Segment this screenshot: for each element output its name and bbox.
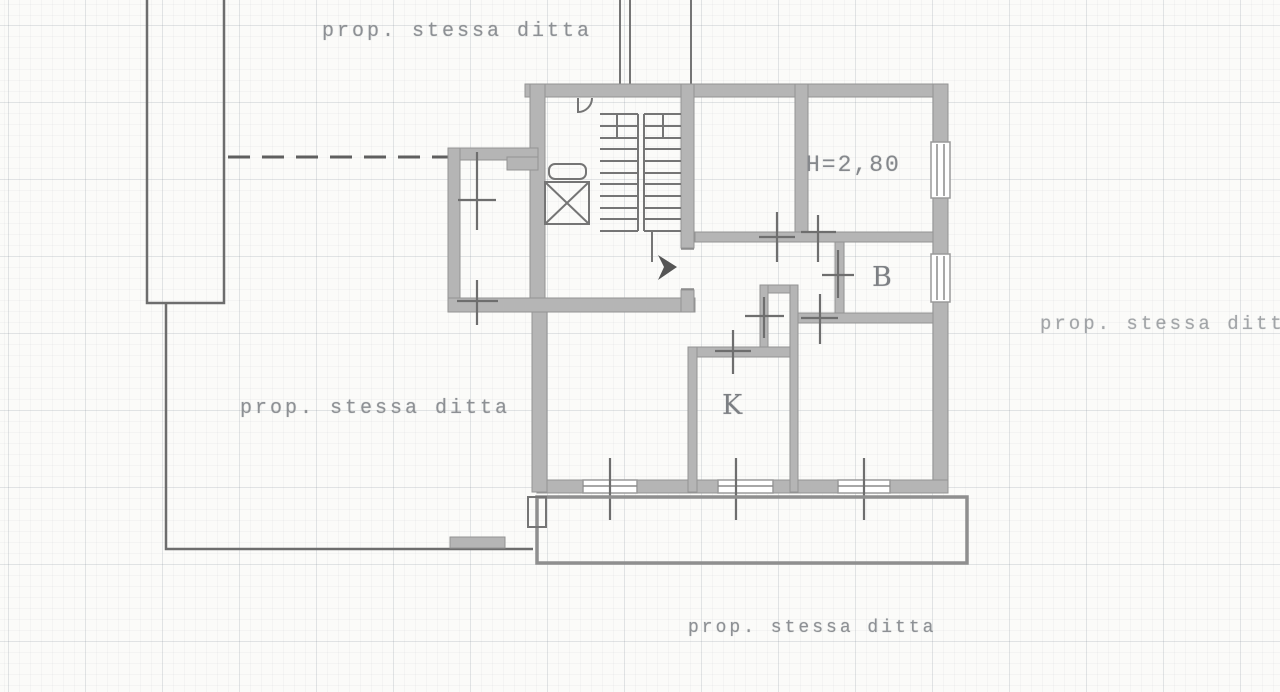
property-boundary-line [166,303,533,549]
label-prop-stessa-ditta-bottom: prop. stessa ditta [688,618,936,638]
label-ceiling-height: H=2,80 [806,152,901,178]
floor-plan-drawing [0,0,1280,692]
staircase [600,114,681,262]
balcony-outline [528,497,967,563]
interior-walls [681,84,933,492]
entrance-arrow-icon [658,255,677,280]
elevator-symbol [545,164,589,224]
label-prop-stessa-ditta-right: prop. stessa ditta [1040,313,1280,335]
lobby-door-arc [578,98,592,112]
label-room-b: B [872,262,892,293]
stair-treads-left [600,114,638,231]
label-prop-stessa-ditta-left: prop. stessa ditta [240,397,510,420]
label-room-k: K [722,390,742,421]
neighbor-building-outline [147,0,224,303]
label-prop-stessa-ditta-top: prop. stessa ditta [322,20,592,43]
scanned-floor-plan-page: { "plan": { "kind": "cadastral apartment… [0,0,1280,692]
stairwell-corridor-lines [620,0,691,84]
